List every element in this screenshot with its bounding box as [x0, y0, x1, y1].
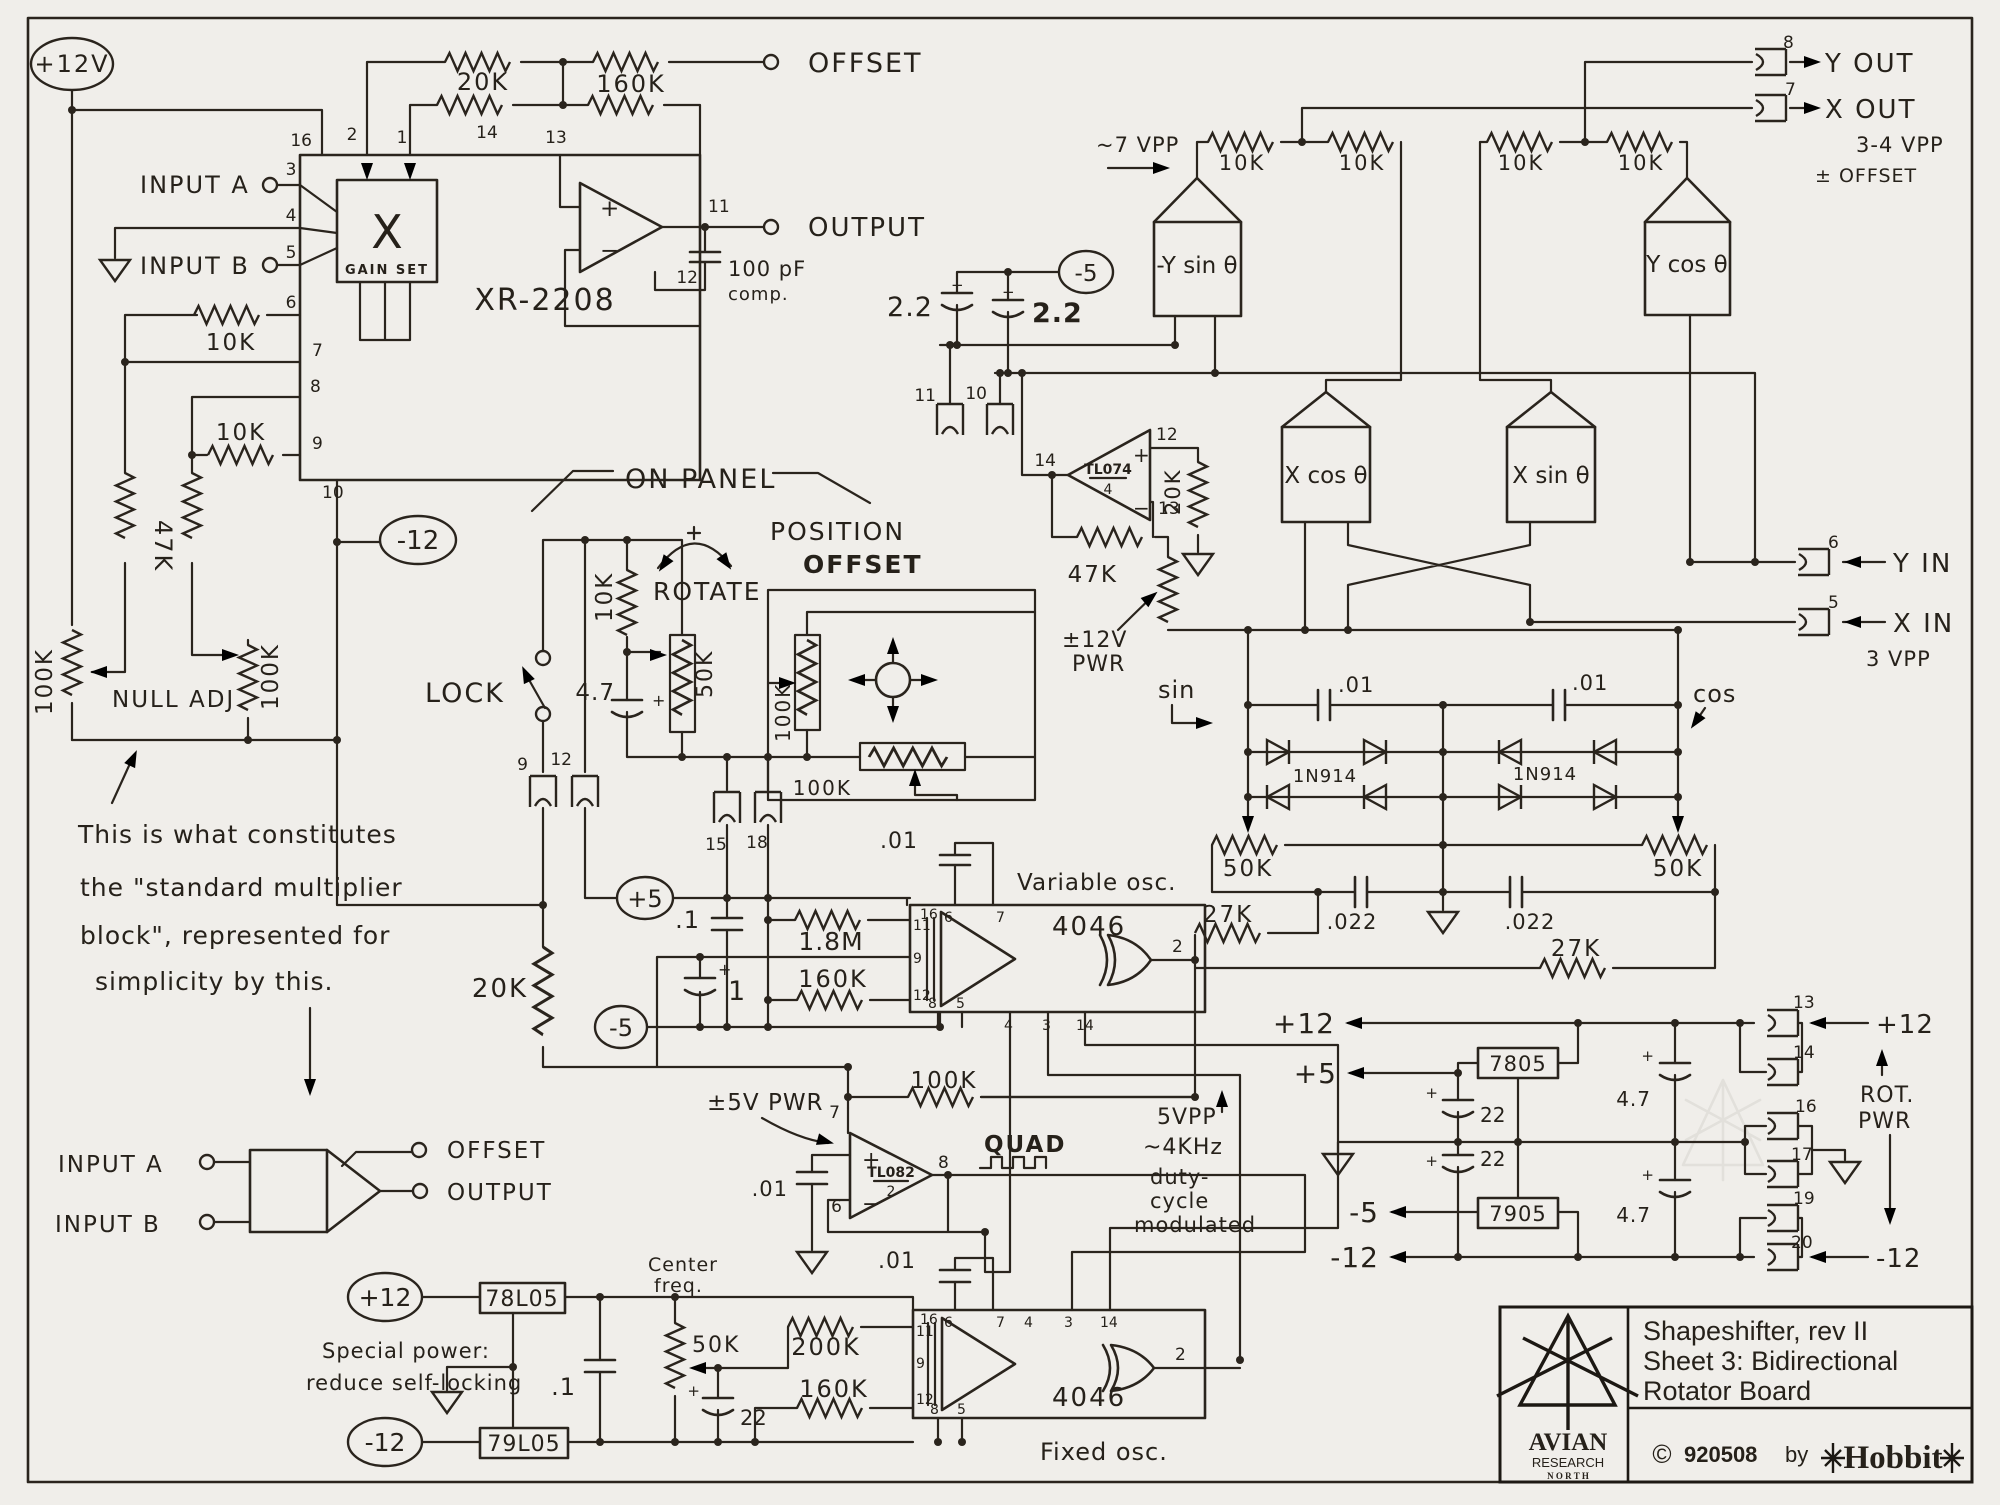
block-xcos-label: X cos θ: [1284, 463, 1367, 489]
p5-out-label: +5: [1294, 1057, 1337, 1090]
multiplier-x-label: X: [371, 205, 403, 259]
c22b-label: 22: [1480, 1147, 1505, 1171]
c22b-minus: −: [1002, 283, 1015, 301]
avian-logo: [1497, 1316, 1638, 1430]
svpp-line2: ~4KHz: [1143, 1135, 1223, 1160]
svg-text:9: 9: [916, 1356, 925, 1372]
vpp34-label: 3-4 VPP: [1856, 133, 1944, 157]
svg-text:12: 12: [550, 750, 572, 770]
xr2208-chip-label: XR-2208: [474, 283, 615, 318]
r10k-b: 10K: [1339, 151, 1386, 175]
svg-text:3: 3: [286, 160, 297, 180]
sin-label: sin: [1158, 676, 1195, 704]
reg7905-label: 7905: [1489, 1202, 1546, 1226]
cos-label: cos: [1693, 680, 1736, 708]
r20k-label: 20K: [457, 68, 509, 96]
r47k-label: 47K: [149, 520, 177, 572]
tl082-p6: 6: [831, 1197, 842, 1217]
note-section: This is what constitutes the "standard m…: [55, 820, 553, 1238]
c22a-plus: +: [1425, 1084, 1438, 1102]
cdot1-label: .1: [675, 906, 700, 934]
pot100k-l-label: 100K: [32, 648, 58, 715]
cdot1-fixed-label: .1: [551, 1373, 576, 1401]
copyright-icon: ©: [1652, 1439, 1671, 1469]
m5-out-label: -5: [1349, 1196, 1379, 1229]
svg-text:17: 17: [1791, 1145, 1813, 1165]
plus5-oval: +5: [627, 885, 662, 913]
svg-text:6: 6: [944, 1315, 953, 1331]
conn7-num: 7: [1785, 80, 1796, 100]
c01-sin-label: .01: [1338, 673, 1374, 697]
panel-section: ON PANEL POSITION OFFSET ROTATE LOCK 10K…: [425, 464, 1035, 1027]
r160k-v-label: 160K: [798, 965, 868, 993]
svg-text:9: 9: [517, 755, 528, 775]
tl074-plus: +: [1133, 443, 1150, 467]
svg-text:2: 2: [1172, 937, 1183, 957]
c47b-plus: +: [1641, 1166, 1654, 1184]
c47-plus: +: [652, 691, 665, 710]
pot100k-v-label: 100K: [771, 683, 795, 742]
r10k-c: 10K: [1498, 151, 1545, 175]
vpp7-label: ~7 VPP: [1096, 133, 1179, 157]
multiplier-blocks: [1154, 178, 1730, 522]
org-north: N O R T H: [1547, 1471, 1589, 1481]
pot100k-r-label: 100K: [258, 643, 284, 710]
c22-b-label: 2.2: [1032, 298, 1083, 329]
c01-cos-label: .01: [1572, 671, 1608, 695]
svg-text:11: 11: [708, 197, 730, 217]
svg-text:14: 14: [1100, 1315, 1118, 1331]
svg-text:7: 7: [996, 1315, 1005, 1331]
tl082-minus: −: [862, 1192, 880, 1217]
title-author: Hobbit: [1843, 1440, 1942, 1476]
note-line1: This is what constitutes: [77, 820, 397, 849]
svg-text:15: 15: [705, 835, 727, 855]
svg-text:12: 12: [676, 268, 698, 288]
scanned-schematic-page: +12V OFFSET 20K 160K INPUT A INPUT B X G…: [0, 0, 2000, 1505]
svg-text:20: 20: [1791, 1233, 1813, 1253]
svg-text:14: 14: [1076, 1018, 1094, 1034]
title-date: 920508: [1684, 1442, 1757, 1467]
special-power-1: Special power:: [322, 1339, 490, 1363]
r10k-a: 10K: [1219, 151, 1266, 175]
title-by: by: [1785, 1442, 1808, 1467]
pwr-5v-label: ±5V PWR: [707, 1090, 824, 1116]
svpp-line5: modulated: [1134, 1213, 1256, 1237]
note-line3: block", represented for: [80, 921, 390, 950]
on-panel-label: ON PANEL: [625, 464, 776, 495]
pwr-12v-label: +12V: [34, 50, 109, 78]
tl074-p12: 12: [1156, 425, 1178, 445]
c022-b-label: .022: [1505, 910, 1556, 934]
p12-out-label: +12: [1273, 1007, 1335, 1040]
tl074-den: 4: [1104, 482, 1113, 498]
plus12-oval: +12: [359, 1283, 412, 1312]
panel-conn-numbers: 9 12 15 18: [517, 750, 768, 855]
sym-offset: OFFSET: [447, 1138, 546, 1164]
position-offset-label: OFFSET: [803, 550, 923, 579]
sin-cos-section: sin cos .01 .01 1N914 1N914 50K 50K 27K …: [1158, 626, 1736, 977]
r27k-a-label: 27K: [1203, 902, 1253, 928]
sym-output: OUTPUT: [447, 1180, 553, 1206]
c22b-plus: +: [1425, 1152, 1438, 1170]
neg12-oval-label: -12: [397, 526, 439, 556]
center-freq-2: freq.: [654, 1275, 703, 1297]
svg-text:7: 7: [312, 341, 323, 361]
fixed-osc-label: Fixed osc.: [1040, 1438, 1168, 1466]
conn6-num: 6: [1828, 533, 1839, 553]
tl082-p7: 7: [829, 1103, 840, 1123]
svpp-line3: duty-: [1150, 1165, 1210, 1189]
quad-label: QUAD: [984, 1132, 1066, 1158]
svg-text:8: 8: [930, 1402, 939, 1418]
pot50k-cos-label: 50K: [1653, 856, 1703, 882]
tl074-minus: −: [1133, 496, 1150, 520]
rotate-label: ROTATE: [653, 577, 762, 606]
block-nysin-label: -Y sin θ: [1156, 253, 1237, 279]
title-line3: Rotator Board: [1643, 1376, 1811, 1406]
tl082-label: TL082: [867, 1165, 915, 1181]
output-terminal-label: OUTPUT: [808, 213, 926, 243]
tl082-den: 2: [887, 1184, 896, 1200]
c22f-plus: +: [687, 1382, 700, 1400]
79l05-label: 79L05: [487, 1432, 560, 1457]
d1n914-a-label: 1N914: [1293, 766, 1357, 787]
r10k-p6-label: 10K: [206, 330, 256, 356]
svg-text:9: 9: [913, 951, 922, 967]
title-line1: Shapeshifter, rev II: [1643, 1316, 1868, 1346]
fixed-osc-section: +12 -12 78L05 79L05 Special power: reduc…: [306, 1249, 1240, 1466]
c47b-label: 4.7: [1616, 1203, 1651, 1227]
note-line4: simplicity by this.: [95, 967, 334, 996]
svg-text:7: 7: [996, 910, 1005, 926]
sym-input-b: INPUT B: [55, 1212, 161, 1238]
svg-text:16: 16: [290, 131, 312, 151]
svg-text:19: 19: [1793, 1189, 1815, 1209]
svg-text:2: 2: [347, 125, 358, 145]
svg-text:13: 13: [1793, 993, 1815, 1013]
lock-label: LOCK: [425, 678, 505, 709]
svg-text:13: 13: [545, 128, 567, 148]
svg-text:3: 3: [1042, 1018, 1051, 1034]
pot50k-sin-label: 50K: [1223, 856, 1273, 882]
svg-text:6: 6: [286, 293, 297, 313]
input-a-label: INPUT A: [140, 171, 250, 199]
svpp-line1: 5VPP: [1157, 1105, 1217, 1130]
c01-tl082-label: .01: [752, 1177, 788, 1201]
svg-text:4: 4: [1004, 1018, 1013, 1034]
vpp3-label: 3 VPP: [1866, 647, 1931, 671]
svg-text:5: 5: [286, 243, 297, 263]
svg-text:18: 18: [746, 833, 768, 853]
svg-text:2: 2: [1175, 1345, 1186, 1365]
svg-text:11: 11: [913, 918, 931, 934]
r10k-d: 10K: [1618, 151, 1665, 175]
sym-input-a: INPUT A: [58, 1152, 164, 1178]
svg-text:5: 5: [956, 996, 965, 1012]
block-ycos-label: Y cos θ: [1645, 252, 1727, 278]
offset-terminal-label: OFFSET: [808, 48, 923, 79]
svg-text:14: 14: [1793, 1043, 1815, 1063]
minus5-oval: -5: [609, 1014, 633, 1042]
org-research: RESEARCH: [1532, 1455, 1604, 1470]
minus5b-oval: -5: [1075, 261, 1098, 287]
r160k-label: 160K: [596, 70, 666, 98]
r200k-label: 200K: [791, 1333, 861, 1361]
svg-text:10: 10: [322, 483, 344, 503]
r160k-f-label: 160K: [799, 1375, 869, 1403]
center-freq-1: Center: [648, 1254, 718, 1276]
svg-text:11: 11: [916, 1324, 934, 1340]
gain-set-label: GAIN SET: [345, 263, 429, 278]
c01-varosc-label: .01: [880, 829, 918, 854]
position-label: POSITION: [770, 517, 905, 546]
svg-text:4: 4: [286, 206, 297, 226]
c22-a-label: 2.2: [887, 292, 933, 323]
block-xsin-label: X sin θ: [1512, 463, 1589, 489]
r20k-t-label: 20K: [1161, 469, 1185, 516]
c47a-label: 4.7: [1616, 1087, 1651, 1111]
reg7805-label: 7805: [1489, 1052, 1546, 1076]
pot50k-cf-label: 50K: [692, 1333, 740, 1358]
minus12-oval: -12: [365, 1428, 406, 1457]
c22a-label: 22: [1480, 1103, 1505, 1127]
conn8-num: 8: [1783, 33, 1794, 53]
p12-in-label: +12: [1876, 1010, 1934, 1040]
r18m-label: 1.8M: [798, 927, 863, 956]
rotator-section: ~7 VPP 10K 10K 10K 10K -Y sin θ Y cos θ …: [887, 33, 1954, 677]
title-line2: Sheet 3: Bidirectional: [1643, 1346, 1898, 1376]
c1-label: 1: [728, 976, 745, 1007]
conn10-num: 10: [965, 384, 987, 404]
power-section: +12 +5 -5 -12 7805 7905 + 22 + 22 + 4.7 …: [1273, 993, 1934, 1274]
svg-text:8: 8: [310, 377, 321, 397]
conn5-num: 5: [1828, 593, 1839, 613]
hobbit-star-right: [1940, 1443, 1964, 1473]
pm-offset-label: ± OFFSET: [1815, 165, 1917, 187]
rot-pwr-2: PWR: [1858, 1109, 1911, 1134]
xout-label: X OUT: [1825, 95, 1916, 125]
c22f-label: 22: [740, 1406, 767, 1430]
org-avian: AVIAN: [1529, 1429, 1608, 1456]
opamp-plus: +: [600, 196, 619, 222]
yin-label: Y IN: [1892, 549, 1952, 579]
c22a-minus: −: [951, 276, 964, 294]
hobbit-star-left: [1821, 1443, 1845, 1473]
78l05-label: 78L05: [485, 1287, 558, 1312]
4046a-label: 4046: [1052, 912, 1126, 942]
c01-fixed-label: .01: [878, 1249, 916, 1274]
c47-label: 4.7: [575, 680, 615, 706]
pwr12v-2: PWR: [1072, 652, 1125, 677]
logo-watermark: [1683, 1080, 1763, 1180]
svg-text:9: 9: [312, 434, 323, 454]
d1n914-b-label: 1N914: [1513, 764, 1577, 785]
c022-a-label: .022: [1327, 910, 1378, 934]
m12-in-label: -12: [1876, 1244, 1921, 1274]
svg-text:1: 1: [397, 128, 408, 148]
r27k-b-label: 27K: [1551, 936, 1601, 962]
svg-text:16: 16: [1795, 1097, 1817, 1117]
title-block: AVIAN RESEARCH N O R T H Shapeshifter, r…: [1497, 1307, 1972, 1482]
pot100k-h-label: 100K: [793, 776, 852, 800]
svg-text:6: 6: [944, 910, 953, 926]
special-power-2: reduce self-locking: [306, 1371, 522, 1395]
svpp-line4: cycle: [1150, 1189, 1209, 1213]
input-b-label: INPUT B: [140, 252, 250, 280]
svg-text:5: 5: [957, 1402, 966, 1418]
c100pf-label: 100 pF: [728, 257, 806, 281]
pot50k-rot-label: 50K: [693, 650, 718, 698]
svg-text:8: 8: [928, 996, 937, 1012]
schematic-canvas: +12V OFFSET 20K 160K INPUT A INPUT B X G…: [0, 0, 2000, 1505]
opamp-minus: −: [600, 238, 619, 264]
4046b-label: 4046: [1052, 1383, 1126, 1413]
xin-label: X IN: [1893, 609, 1954, 639]
r100k-label: 100K: [911, 1068, 978, 1094]
m12-out-label: -12: [1330, 1241, 1379, 1274]
note-line2: the "standard multiplier: [80, 873, 403, 902]
comp-label: comp.: [728, 284, 789, 305]
rot-pwr-1: ROT.: [1860, 1083, 1914, 1108]
r20k-mid-label: 20K: [472, 974, 528, 1004]
tl082-p8: 8: [938, 1153, 949, 1173]
svg-text:14: 14: [476, 123, 498, 143]
tl074-label: TL074: [1084, 462, 1132, 478]
conn11-num: 11: [914, 386, 936, 406]
r47k-t-label: 47K: [1068, 562, 1118, 588]
yout-label: Y OUT: [1824, 49, 1915, 79]
r10k-p9-label: 10K: [216, 420, 266, 446]
null-adj-label: NULL ADJ: [112, 687, 235, 713]
power-conn-numbers: 13 14 16 17 19 20: [1791, 993, 1817, 1253]
variable-osc-label: Variable osc.: [1017, 870, 1176, 896]
svg-text:3: 3: [1064, 1315, 1073, 1331]
svg-text:4: 4: [1024, 1315, 1033, 1331]
tl074-p14: 14: [1034, 451, 1056, 471]
panel-r10k-label: 10K: [592, 572, 618, 622]
pwr12v-1: ±12V: [1062, 628, 1127, 653]
c47a-plus: +: [1641, 1047, 1654, 1065]
